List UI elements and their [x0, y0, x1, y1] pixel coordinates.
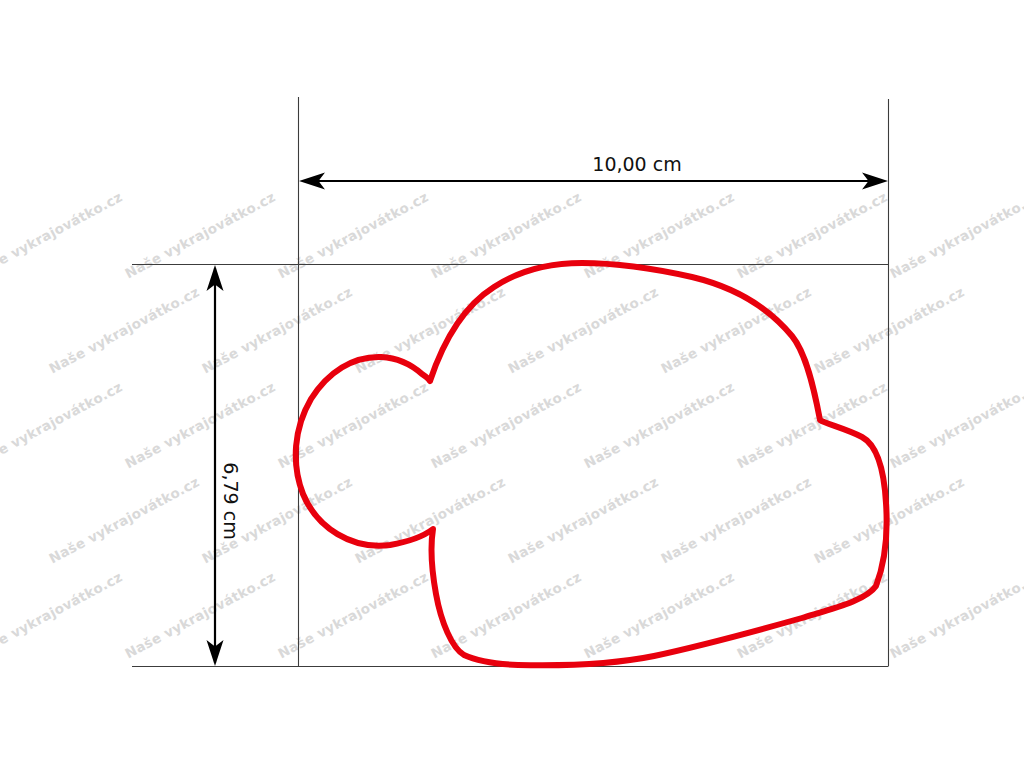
dimension-drawing	[0, 0, 1024, 768]
cutter-outline-path	[296, 263, 887, 665]
width-dimension-label: 10,00 cm	[592, 153, 681, 175]
height-dimension-label: 6,79 cm	[220, 462, 242, 539]
cutter-dimension-diagram: Naše vykrajovátko.czNaše vykrajovátko.cz…	[0, 0, 1024, 768]
width-dimension-arrow	[299, 173, 888, 190]
